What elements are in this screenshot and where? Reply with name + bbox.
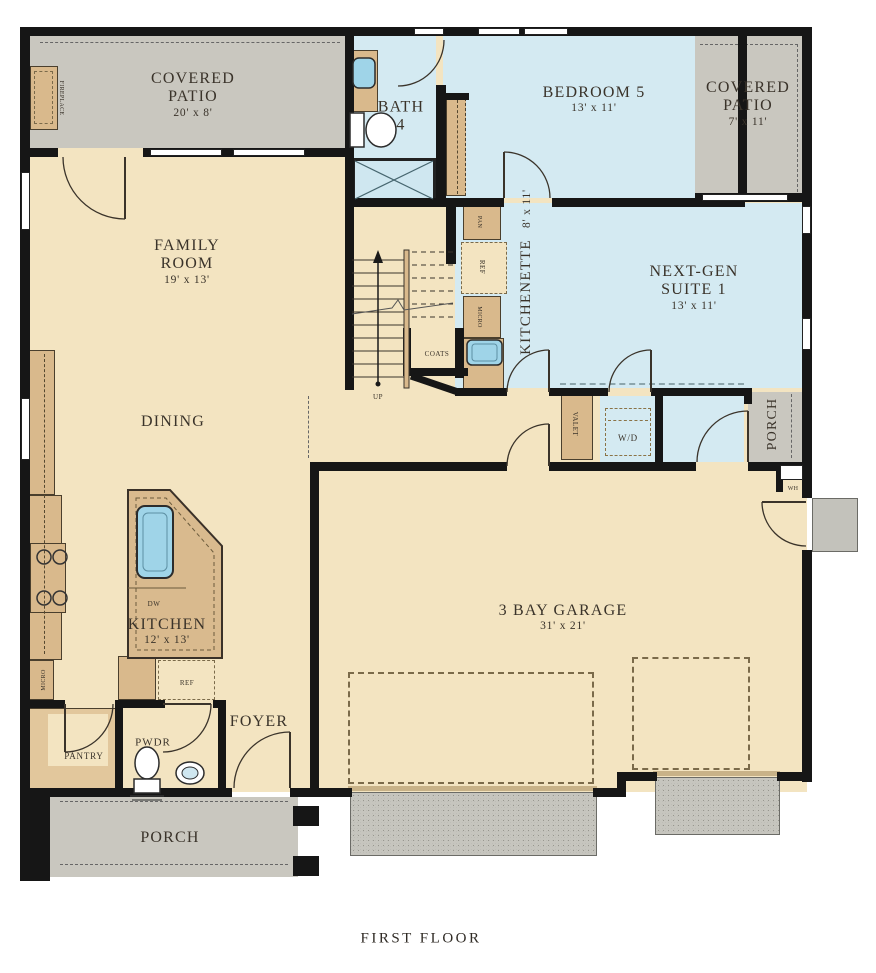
- coats-label: COATS: [412, 343, 462, 361]
- fireplace-label: FIREPLACE: [55, 63, 73, 133]
- wall-segment: [446, 200, 456, 264]
- wd-label: W/D: [608, 428, 648, 446]
- kitchenette-micro-label: MICRO: [473, 295, 491, 339]
- window: [802, 206, 811, 234]
- wall-segment: [293, 806, 319, 826]
- window: [150, 149, 222, 156]
- window: [702, 194, 788, 201]
- room-label-kitchen: KITCHEN 12' x 13': [97, 616, 237, 648]
- wall-segment: [20, 793, 50, 881]
- room-label-dining: DINING: [113, 413, 233, 431]
- room-label-covered-patio-right: COVERED PATIO 7' x 11': [693, 79, 803, 129]
- wall-segment: [455, 388, 507, 396]
- window: [524, 28, 568, 35]
- kitchenette-counter: [463, 338, 504, 390]
- wall-segment: [617, 772, 657, 781]
- counter-dash: [44, 354, 45, 654]
- wh-label: WH: [778, 477, 808, 495]
- room-label-next-gen-suite: NEXT-GEN SUITE 1 13' x 11': [629, 263, 759, 313]
- dining-cased-opening: [308, 396, 309, 458]
- porch-front-line-top: [60, 801, 288, 802]
- room-label-foyer: FOYER: [209, 713, 309, 731]
- wall-segment: [549, 388, 608, 396]
- kitchen-cabinet: [118, 656, 156, 700]
- wall-segment: [310, 788, 352, 797]
- window: [233, 149, 305, 156]
- wall-segment: [310, 462, 507, 471]
- garage-door-left: [348, 672, 594, 784]
- shower-area: [352, 158, 436, 202]
- room-label-pantry: PANTRY: [49, 751, 119, 761]
- garage-door-right: [632, 657, 750, 770]
- garage-sill-left: [348, 786, 597, 791]
- washer-dryer-split: [608, 420, 648, 421]
- garage-stoop: [812, 498, 858, 552]
- room-label-porch-front: PORCH: [110, 829, 230, 847]
- wall-segment: [549, 462, 696, 471]
- room-label-garage: 3 BAY GARAGE 31' x 21': [453, 602, 673, 634]
- closet-slider-line: [457, 100, 458, 194]
- window: [414, 28, 444, 35]
- suite-ceiling-break: [560, 383, 744, 385]
- room-label-covered-patio-left: COVERED PATIO 20' x 8': [128, 70, 258, 120]
- wall-segment: [403, 368, 468, 376]
- wall-segment: [651, 388, 750, 396]
- room-label-porch-right: PORCH: [765, 389, 781, 459]
- wall-segment: [436, 85, 446, 202]
- room-label-family-room: FAMILY ROOM 19' x 13': [140, 237, 235, 287]
- bedroom5-closet: [446, 98, 466, 196]
- wall-segment: [403, 328, 411, 376]
- wall-segment: [744, 388, 752, 404]
- wall-segment: [777, 772, 812, 781]
- kitchenette-ref-label: REF: [475, 247, 493, 287]
- porch-right-edge: [791, 394, 792, 458]
- wall-segment: [443, 93, 469, 100]
- wall-segment: [655, 396, 663, 462]
- kitchen-micro-label: MICRO: [32, 658, 50, 702]
- dw-label: DW: [139, 593, 169, 611]
- wall-segment: [27, 148, 58, 157]
- wall-segment: [310, 462, 319, 792]
- plan-caption: FIRST FLOOR: [271, 930, 571, 947]
- fireplace-inner: [34, 71, 53, 124]
- patio-left-roofline: [40, 42, 340, 43]
- wall-segment: [802, 550, 812, 782]
- wall-segment: [802, 36, 812, 498]
- kitchen-ref-label: REF: [167, 672, 207, 690]
- wall-segment: [293, 856, 319, 876]
- window: [478, 28, 520, 35]
- cooktop-cabinet: [30, 543, 66, 613]
- garage-sill-right: [653, 771, 780, 776]
- driveway-apron-left: [350, 792, 597, 856]
- floor-plan: COVERED PATIO 20' x 8' BATH 4 BEDROOM 5 …: [0, 0, 876, 973]
- room-label-bedroom5: BEDROOM 5 13' x 11': [504, 84, 684, 116]
- window: [802, 318, 811, 350]
- driveway-apron-right: [655, 777, 780, 835]
- valet-label: VALET: [568, 399, 586, 449]
- patio-right-roofline-top: [700, 44, 798, 45]
- up-label: UP: [363, 386, 393, 404]
- room-label-powder: PWDR: [118, 737, 188, 750]
- wall-segment: [345, 36, 354, 390]
- room-label-bath4: BATH 4: [373, 99, 429, 136]
- suite-vestibule-area: [663, 396, 744, 462]
- window: [21, 398, 30, 460]
- porch-front-line-bottom: [60, 864, 288, 865]
- room-label-kitchenette: KITCHENETTE 8' x 11': [517, 177, 535, 367]
- pan-label: PAN: [473, 202, 491, 242]
- wall-segment: [20, 788, 232, 797]
- kitchen-counter-left: [28, 350, 55, 495]
- window: [21, 172, 30, 230]
